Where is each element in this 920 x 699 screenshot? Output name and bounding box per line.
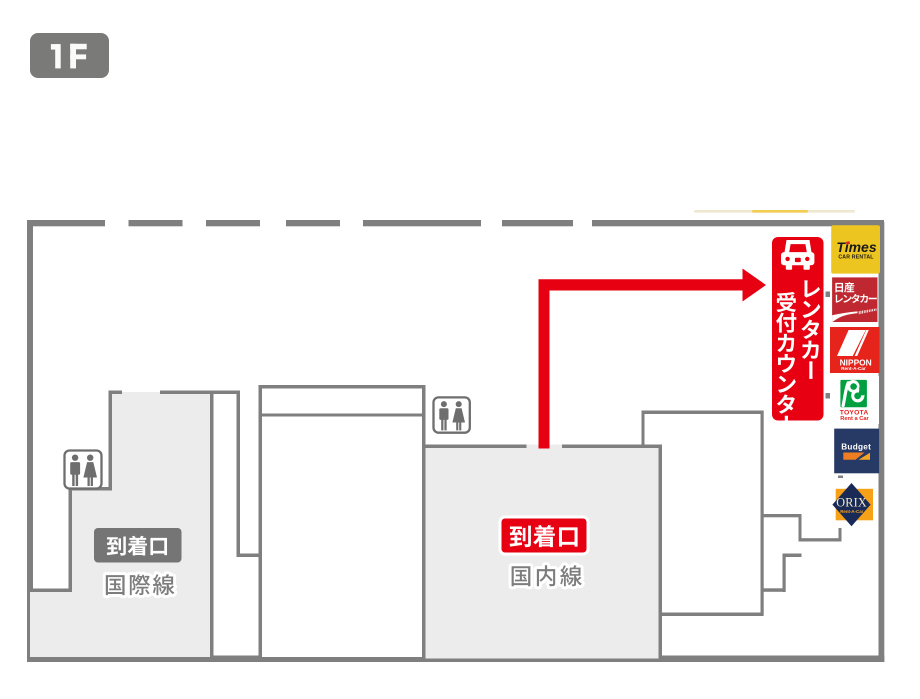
svg-text:ORIX: ORIX <box>836 496 867 510</box>
svg-text:Rent-A-Car: Rent-A-Car <box>840 509 863 514</box>
svg-text:Rent-A-Car: Rent-A-Car <box>841 366 866 371</box>
svg-text:Times: Times <box>836 239 876 255</box>
svg-text:Rent a Car: Rent a Car <box>840 416 869 422</box>
svg-text:Budget: Budget <box>841 442 871 451</box>
svg-text:CAR RENTAL: CAR RENTAL <box>838 254 874 260</box>
